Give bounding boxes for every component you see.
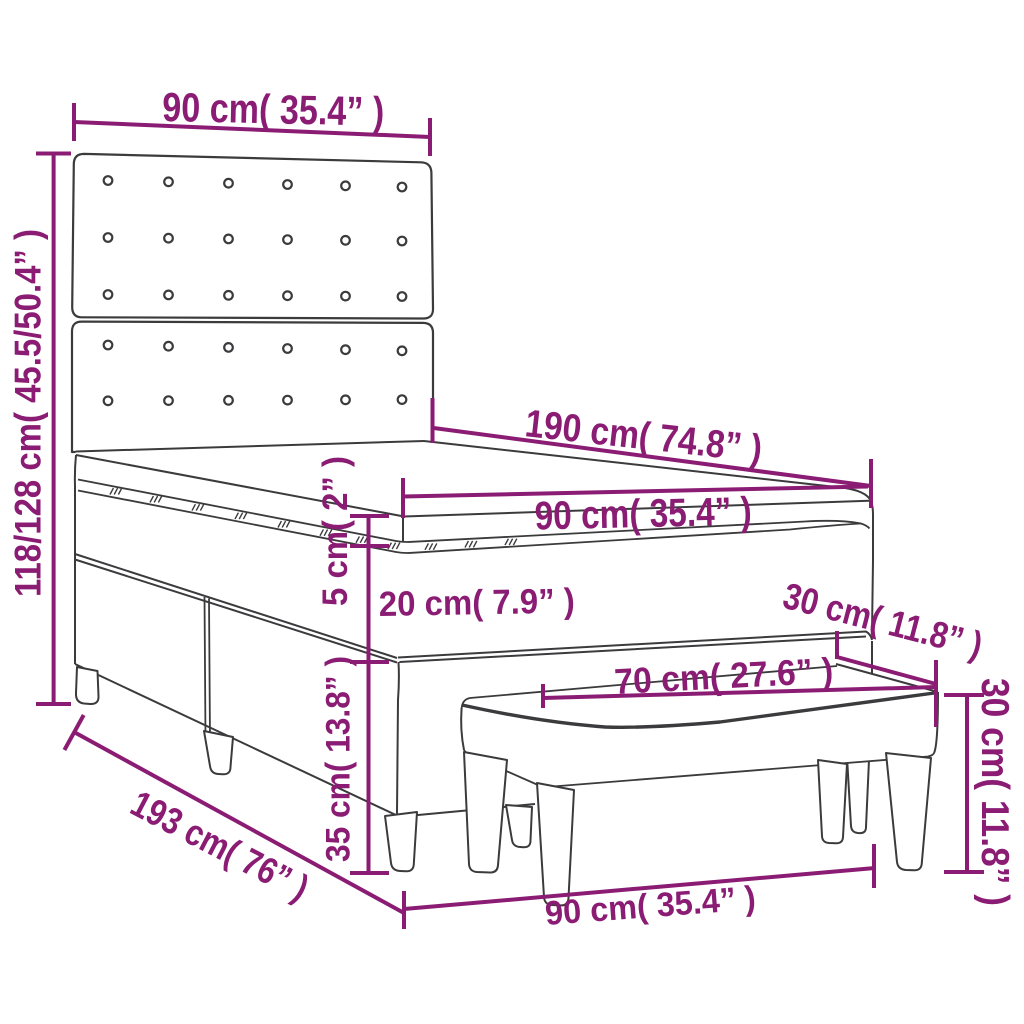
- svg-text:90 cm( 35.4” ): 90 cm( 35.4” ): [544, 879, 757, 933]
- svg-text:90 cm( 35.4” ): 90 cm( 35.4” ): [162, 84, 385, 135]
- svg-text:35 cm( 13.8” ): 35 cm( 13.8” ): [320, 656, 358, 862]
- svg-text:90 cm( 35.4” ): 90 cm( 35.4” ): [534, 490, 752, 539]
- svg-text:193 cm( 76” ): 193 cm( 76” ): [124, 783, 315, 909]
- svg-text:30 cm( 11.8” ): 30 cm( 11.8” ): [973, 678, 1016, 906]
- svg-text:5 cm( 2” ): 5 cm( 2” ): [316, 456, 355, 606]
- svg-text:118/128 cm( 45.5/50.4” ): 118/128 cm( 45.5/50.4” ): [8, 229, 49, 597]
- svg-text:20 cm( 7.9” ): 20 cm( 7.9” ): [378, 582, 575, 624]
